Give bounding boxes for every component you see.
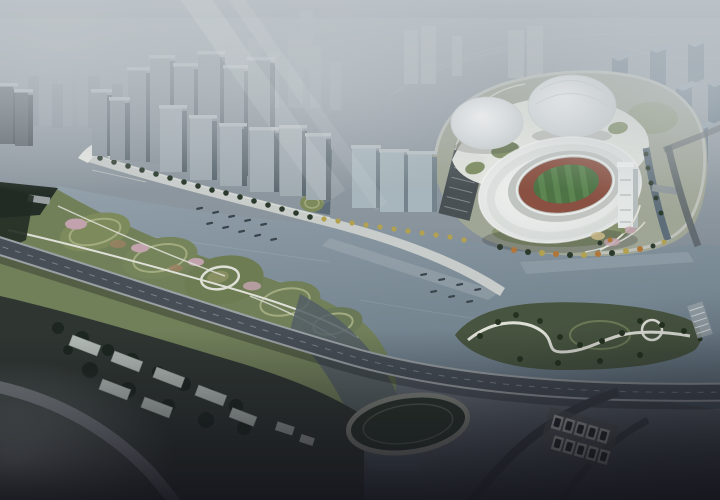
tree — [598, 241, 603, 246]
tree — [223, 190, 229, 196]
tree — [567, 252, 573, 258]
tree — [447, 234, 452, 239]
tree — [595, 251, 601, 257]
tree — [553, 251, 559, 257]
tree — [335, 218, 340, 223]
tree — [377, 224, 382, 229]
rendering-canvas — [0, 0, 720, 500]
tree — [363, 222, 368, 227]
tree — [662, 240, 667, 245]
tree — [609, 250, 615, 256]
tree — [621, 229, 626, 234]
tree — [405, 228, 410, 233]
tree — [265, 202, 271, 208]
tree — [608, 238, 613, 243]
tree — [279, 206, 285, 212]
tree — [513, 312, 519, 318]
aerial-masterplan-rendering — [0, 0, 720, 500]
tree — [433, 232, 438, 237]
tree — [623, 248, 629, 254]
tree — [495, 319, 501, 325]
tree — [461, 237, 466, 242]
tree — [637, 246, 643, 252]
tree — [497, 244, 503, 250]
tree — [251, 198, 257, 204]
tree — [525, 249, 531, 255]
tree — [307, 214, 313, 220]
tree — [537, 318, 543, 324]
tree — [293, 210, 299, 216]
tree — [349, 220, 354, 225]
tree — [237, 194, 243, 200]
tree — [539, 250, 545, 256]
tree — [511, 247, 517, 253]
tree — [321, 216, 326, 221]
tree — [419, 230, 424, 235]
tree — [651, 244, 656, 249]
tree — [581, 252, 587, 258]
tree — [391, 226, 396, 231]
